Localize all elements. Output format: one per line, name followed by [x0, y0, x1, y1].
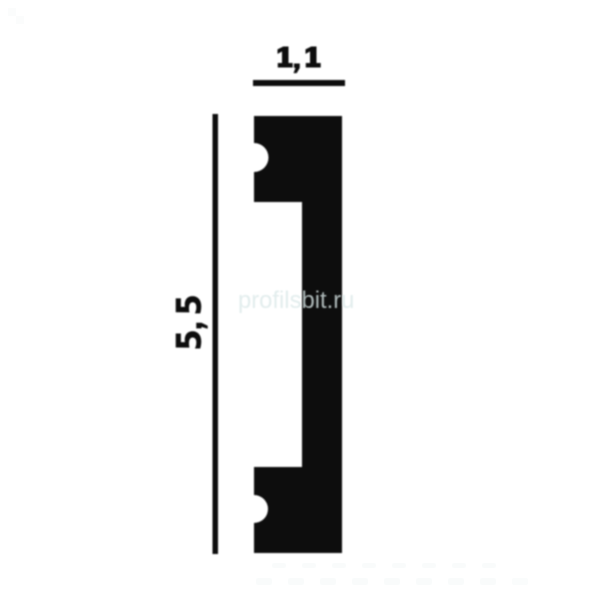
svg-text:profilsbit.ru: profilsbit.ru	[238, 287, 354, 314]
